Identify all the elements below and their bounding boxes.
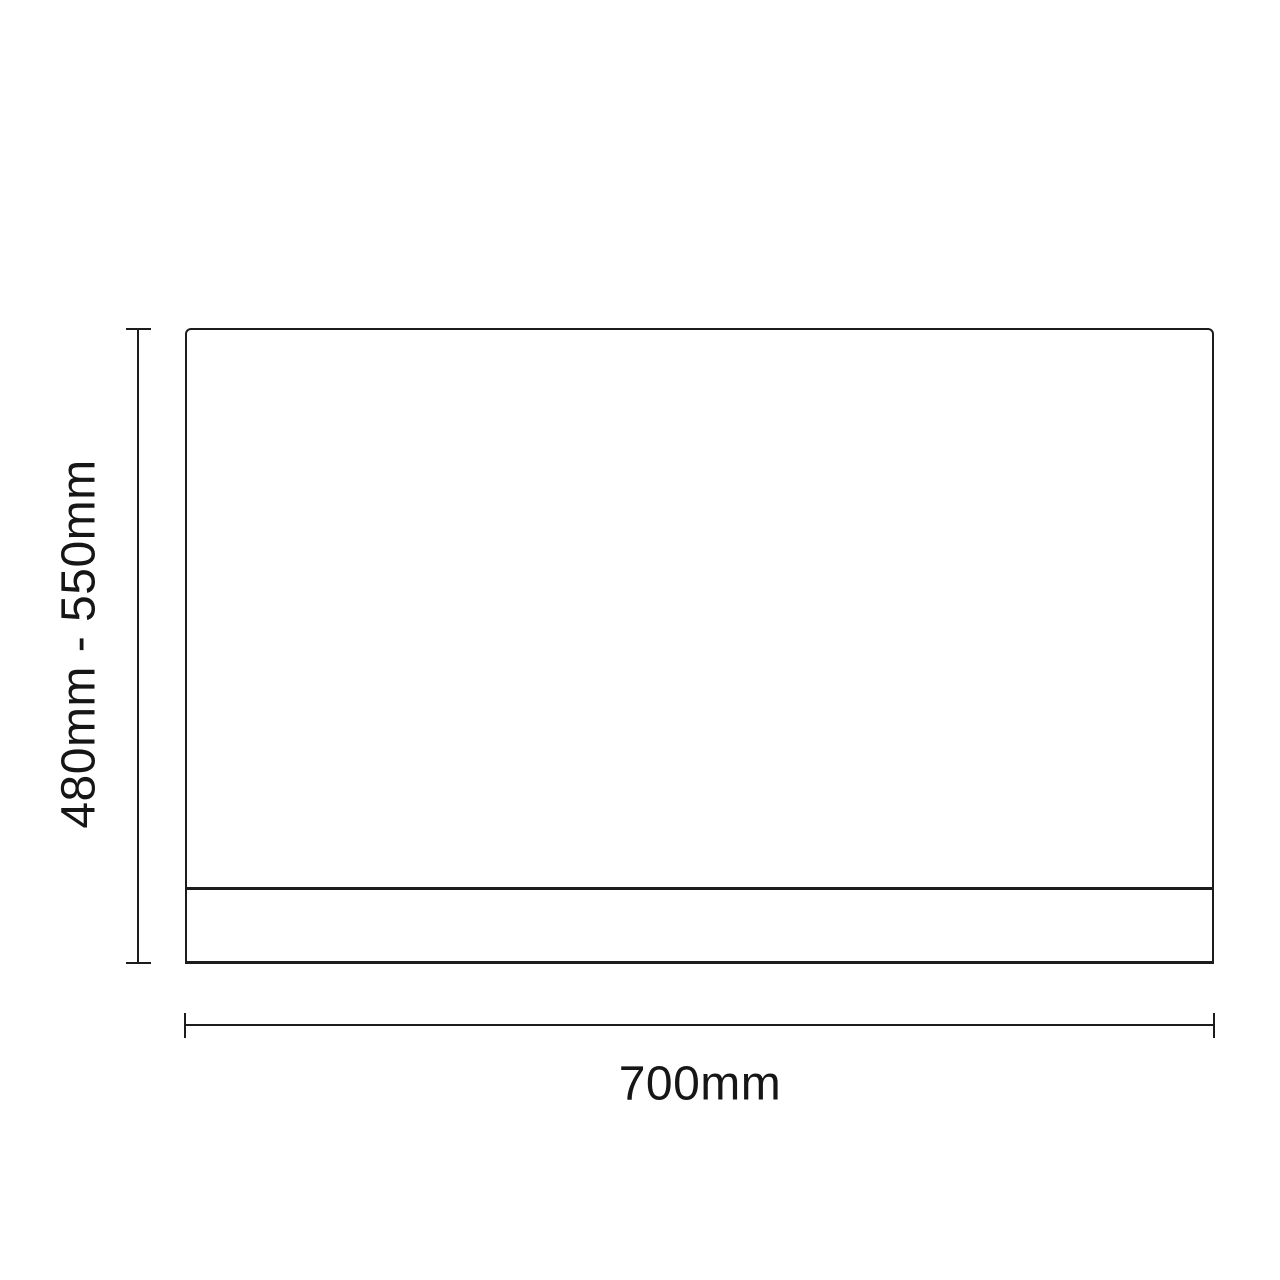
panel-bottom-edge-line [185, 961, 1214, 964]
width-dimension-line [185, 1024, 1215, 1026]
width-dimension-label: 700mm [619, 1057, 782, 1112]
height-dimension-cap-bottom [126, 962, 151, 964]
height-dimension-line [137, 329, 139, 964]
panel-outline [185, 328, 1214, 964]
dimension-drawing-canvas: 480mm - 550mm 700mm [0, 0, 1280, 1280]
width-dimension-cap-right [1213, 1013, 1215, 1038]
height-dimension-label: 480mm - 550mm [52, 459, 107, 828]
panel-plinth-divider-line [185, 887, 1214, 890]
